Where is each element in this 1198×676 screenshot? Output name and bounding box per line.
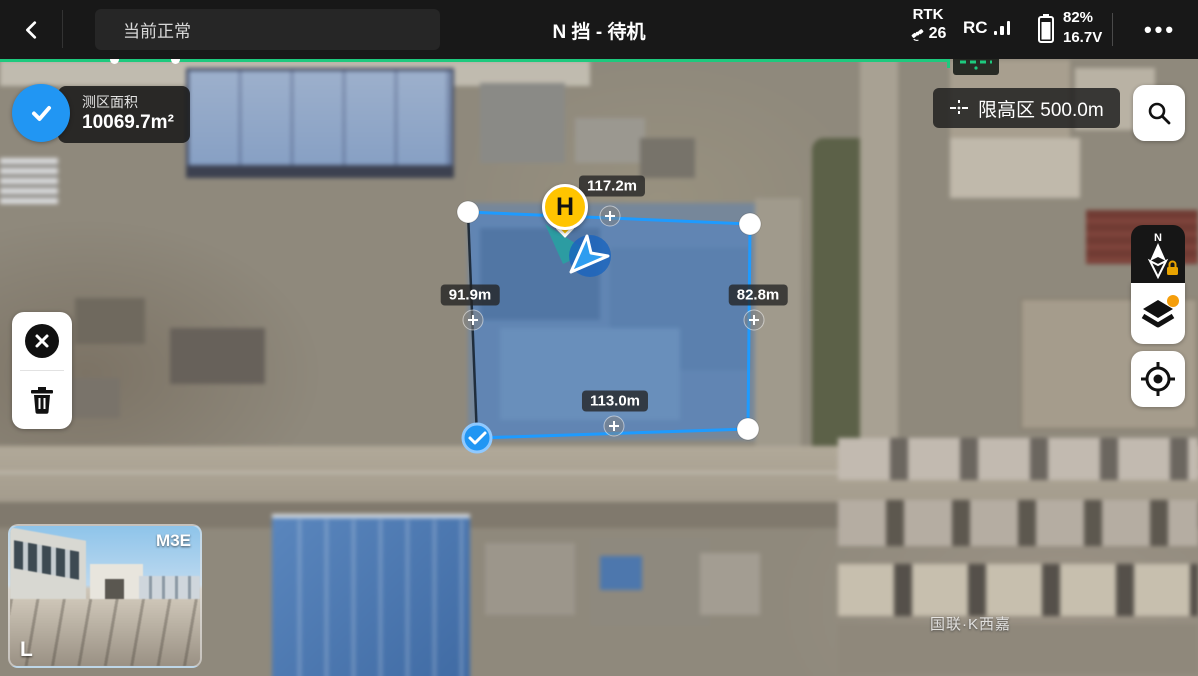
height-limit-text: 限高区 500.0m (978, 95, 1104, 122)
map-feature (950, 138, 1080, 198)
health-status-pill[interactable]: 当前正常 (95, 9, 440, 50)
map-feature (274, 520, 468, 676)
home-point-marker: H (542, 184, 588, 230)
health-status-text: 当前正常 (123, 17, 191, 42)
map-feature (170, 328, 265, 384)
edge-length-label-bottom: 113.0m (582, 391, 648, 412)
top-status-bar: 当前正常 N 挡 - 待机 RTK 26 RC (0, 0, 1198, 59)
topbar-divider (1112, 13, 1113, 46)
map-feature (575, 118, 645, 163)
chevron-left-icon (21, 19, 43, 41)
map-watermark: 国联·K西嘉 (930, 613, 1011, 634)
battery-status[interactable]: 82% 16.7V (1037, 8, 1102, 48)
fpv-door (105, 579, 124, 600)
compass-button[interactable]: N (1131, 225, 1185, 283)
compass-north-label: N (1154, 232, 1162, 244)
close-icon (25, 324, 59, 358)
dashed-crosshair-icon (949, 98, 969, 118)
ellipsis-icon: ••• (1144, 17, 1176, 43)
rtk-satellite-count: 26 (929, 23, 947, 45)
battery-percent: 82% (1063, 8, 1102, 28)
rc-signal-status[interactable]: RC (963, 18, 1010, 38)
map-feature (0, 158, 58, 204)
rtk-status[interactable]: RTK 26 (900, 7, 956, 45)
map-feature (75, 298, 145, 344)
area-confirmed-badge (12, 84, 70, 142)
map-feature (860, 58, 898, 466)
map-feature (640, 138, 695, 178)
map-feature (70, 378, 120, 418)
map-feature (838, 564, 1198, 616)
map-feature (700, 553, 760, 615)
map-feature (838, 624, 1198, 674)
edge-length-label-right: 82.8m (729, 285, 788, 306)
rtk-label: RTK (900, 7, 956, 23)
flight-mode-title: N 挡 - 待机 (553, 17, 646, 44)
rc-signal-bars-icon (994, 21, 1011, 38)
survey-area-label: 测区面积 (82, 93, 176, 111)
edit-tools-panel (12, 312, 72, 429)
fpv-fence (139, 576, 200, 598)
compass-needle-icon (1150, 243, 1166, 261)
map-feature (480, 83, 565, 163)
notification-dot (1167, 295, 1179, 307)
edge-length-label-top: 117.2m (579, 176, 645, 197)
map-feature (485, 543, 575, 615)
rc-label: RC (963, 18, 988, 38)
map-layers-button[interactable] (1131, 283, 1185, 344)
map-feature (600, 556, 642, 590)
satellite-icon (910, 27, 925, 42)
back-button[interactable] (16, 14, 48, 46)
locate-crosshair-icon (1138, 359, 1178, 399)
close-edit-button[interactable] (12, 312, 72, 370)
more-menu-button[interactable]: ••• (1134, 10, 1186, 50)
survey-area-value: 10069.7m² (82, 111, 176, 135)
drone-model-label: M3E (156, 531, 191, 551)
map-feature (189, 71, 451, 165)
check-icon (26, 98, 56, 128)
battery-voltage: 16.7V (1063, 28, 1102, 48)
map-feature (838, 438, 1198, 480)
edge-length-label-left: 91.9m (441, 285, 500, 306)
height-limit-zone-pill[interactable]: 限高区 500.0m (933, 88, 1120, 128)
fpv-ground (10, 599, 200, 666)
battery-icon (1037, 12, 1055, 44)
home-marker-label: H (542, 184, 588, 230)
trash-icon (28, 385, 56, 415)
app-screen: 117.2m 91.9m 82.8m 113.0m H 当前正常 N 挡 - 待… (0, 0, 1198, 676)
survey-area-card: 测区面积 10069.7m² (58, 86, 190, 143)
map-feature (186, 166, 454, 178)
search-button[interactable] (1133, 85, 1185, 141)
delete-button[interactable] (12, 371, 72, 429)
locate-me-button[interactable] (1131, 351, 1185, 407)
search-icon (1146, 100, 1172, 126)
compass-needle-south (1150, 261, 1166, 277)
gimbal-mode-label: L (20, 638, 33, 662)
topbar-divider (62, 10, 63, 48)
lock-icon (1167, 262, 1178, 276)
fpv-camera-preview[interactable]: M3E L (8, 524, 202, 668)
map-feature (838, 500, 1198, 546)
